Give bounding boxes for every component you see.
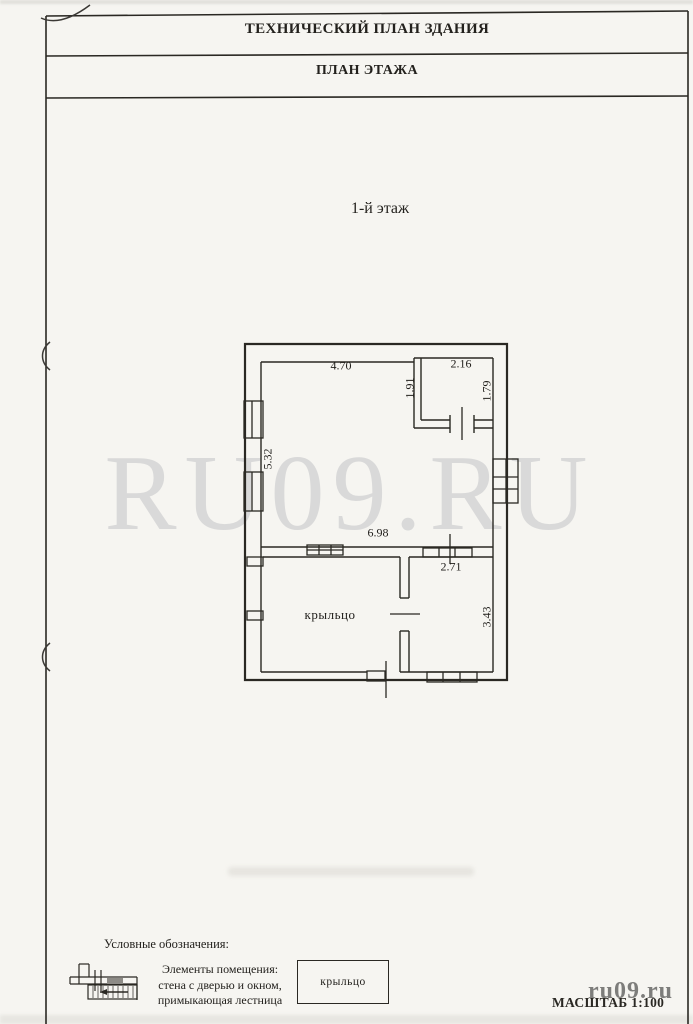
legend-porch-box-label: крыльцо	[320, 976, 365, 988]
dim-main-room-left: 5.32	[261, 449, 276, 470]
corner-watermark: ru09.ru	[588, 978, 673, 1005]
scan-pen-marks	[41, 5, 90, 671]
dim-main-room-bottom: 6.98	[368, 526, 389, 541]
dim-small-room-right: 1.79	[480, 381, 495, 402]
legend-symbol	[70, 964, 137, 1000]
floor-plan-door-marks	[367, 407, 462, 698]
dim-main-room-top: 4.70	[331, 359, 352, 374]
floor-plan-windows	[244, 401, 518, 682]
floor-plan-outer-wall	[245, 344, 507, 680]
dim-lower-room-top: 2.71	[441, 560, 462, 575]
dim-small-room-top: 2.16	[451, 357, 472, 372]
room-label-porch: крыльцо	[305, 607, 356, 623]
page-frame	[46, 11, 688, 1024]
floor-plan-inner-walls	[261, 358, 493, 672]
dim-lower-room-right: 3.43	[480, 607, 495, 628]
legend-porch-box: крыльцо	[297, 960, 389, 1004]
linework-layer	[0, 0, 693, 1024]
scanned-floor-plan-page: { "document": { "title": "ТЕХНИЧЕСКИЙ ПЛ…	[0, 0, 693, 1024]
dim-small-room-left: 1.91	[403, 378, 418, 399]
